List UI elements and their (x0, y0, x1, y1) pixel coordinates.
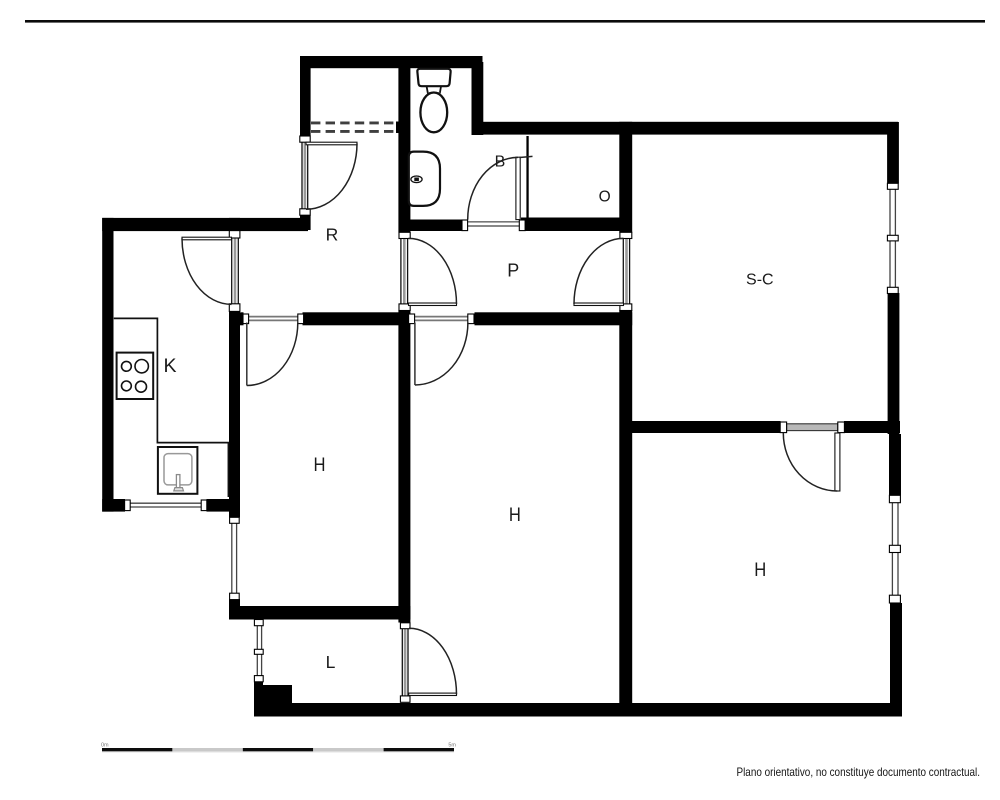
svg-text:L: L (326, 652, 336, 672)
svg-text:O: O (599, 188, 611, 205)
svg-text:B: B (495, 153, 506, 170)
svg-text:P: P (507, 260, 519, 280)
svg-text:K: K (163, 355, 176, 377)
svg-text:H: H (509, 505, 521, 526)
svg-text:H: H (754, 560, 766, 581)
svg-text:5m: 5m (448, 743, 456, 749)
svg-text:Plano orientativo, no constitu: Plano orientativo, no constituye documen… (737, 765, 981, 779)
svg-text:R: R (326, 224, 339, 244)
svg-text:S-C: S-C (746, 271, 774, 288)
svg-text:0m: 0m (101, 743, 109, 749)
svg-text:H: H (314, 455, 326, 476)
